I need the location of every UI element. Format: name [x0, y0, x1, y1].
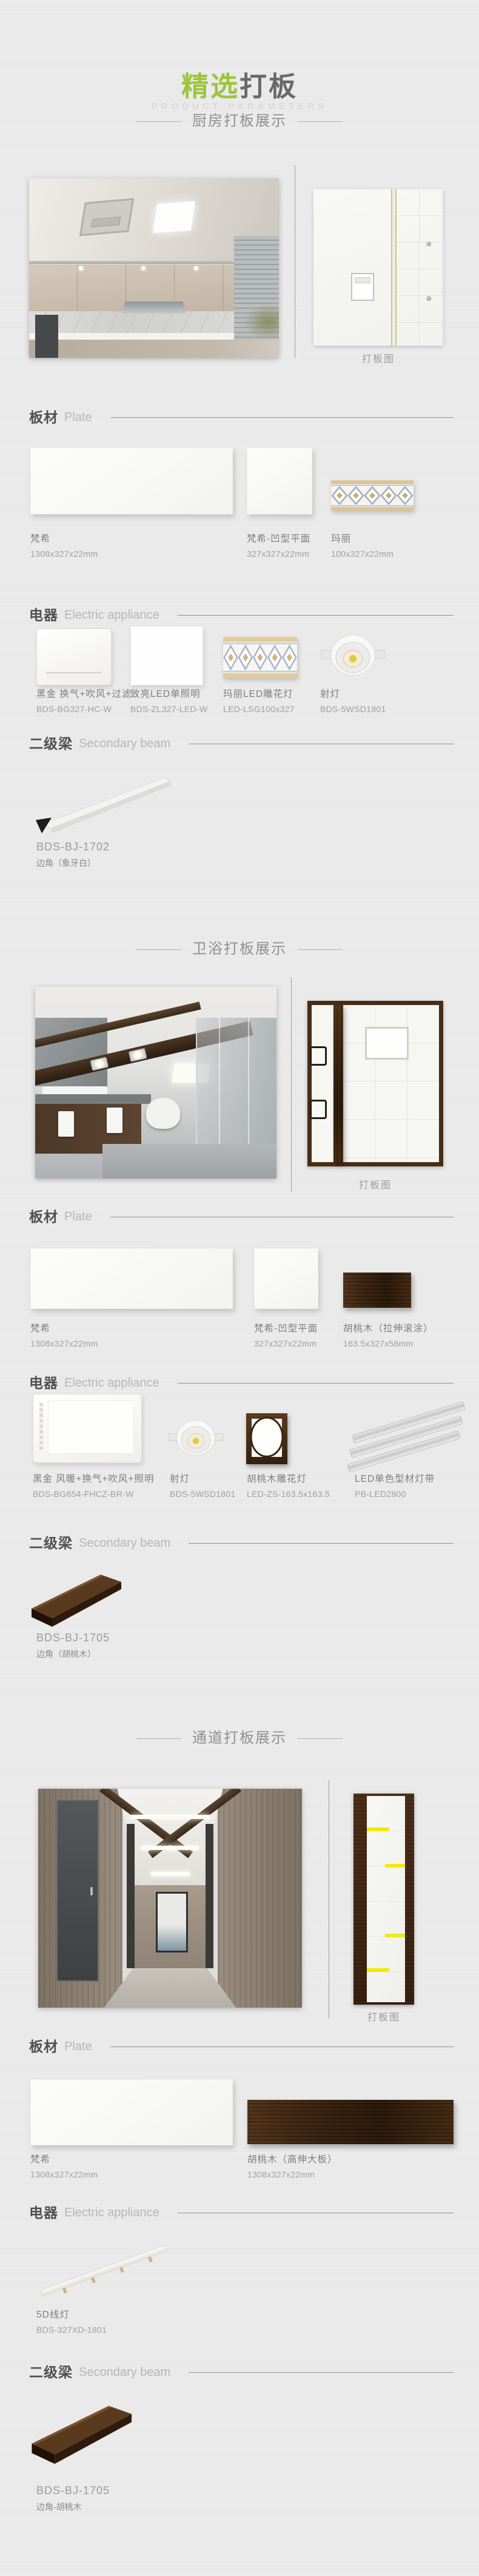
bathroom-panel-diagram: [307, 1001, 443, 1166]
item-name: 梵希-凹型平面: [254, 1321, 318, 1334]
header-rule: [189, 1543, 454, 1544]
kitchen-dark-appliance: [35, 315, 58, 358]
hallway-photo: [38, 1789, 302, 2008]
item-model: PB-LED2800: [355, 1489, 435, 1499]
item-name: 射灯: [320, 687, 386, 700]
plate-header-en: Plate: [64, 2038, 92, 2055]
item-label: 胡桃木（拉伸滚涂） 163.5x327x58mm: [343, 1321, 434, 1348]
walnut-carved-lamp-image: [246, 1413, 287, 1464]
hallway-door-opening: [206, 1824, 213, 1968]
hallway-right-wall: [218, 1789, 302, 2008]
item-size: 1308x327x22mm: [30, 1339, 98, 1348]
plate-walnut-image: [343, 1273, 411, 1308]
beam-header-hallway: 二级梁 Secondary beam: [29, 2364, 454, 2381]
diagram-trim-strip: [391, 189, 397, 346]
item-name: 黑金 风暖+换气+吹风+照明: [33, 1471, 154, 1485]
led-profile-strips-image: [346, 1408, 467, 1467]
header-rule: [178, 615, 454, 616]
header-rule: [110, 1217, 454, 1217]
kitchen-panel-diagram: [313, 189, 443, 346]
item-label: 胡桃木雕花灯 LED-ZS-163.5x163.5: [247, 1471, 330, 1499]
hallway-light-bar: [141, 1846, 199, 1850]
header-rule: [110, 2046, 454, 2047]
item-size: 1308x327x22mm: [30, 549, 98, 559]
door-handle: [90, 1887, 93, 1895]
diagram-appliance-marker: [365, 1027, 409, 1060]
beam-model: BDS-BJ-1705: [36, 2484, 110, 2497]
item-size: 327x327x22mm: [254, 1339, 318, 1348]
bathroom-counter: [35, 1094, 151, 1104]
section-heading-bathroom-text: 卫浴打板展示: [192, 941, 287, 958]
item-model: BDS-BG327-HC-W: [36, 704, 132, 714]
item-label: 致亮LED单照明 BDS-ZL327-LED-W: [130, 687, 207, 714]
diagram-carved-lamp: [310, 1046, 327, 1066]
header-rule: [178, 2213, 454, 2213]
item-model: BDS-5WSD1801: [320, 704, 386, 714]
corner-beam-ivory-icon: [33, 765, 179, 838]
item-name: 5D线灯: [36, 2307, 107, 2321]
mary-pattern: [223, 637, 297, 678]
plate-header-zh: 板材: [29, 2038, 58, 2055]
item-model: BDS-ZL327-LED-W: [130, 704, 207, 714]
section-heading-hallway: 通道打板展示: [0, 1730, 479, 1747]
bathroom-heater-image: [33, 1394, 142, 1463]
hallway-door: [56, 1800, 98, 1982]
diagram-screw: [426, 296, 431, 301]
corner-beam-ivory-image: [33, 765, 179, 838]
heading-line-left: [136, 121, 181, 122]
item-label: 梵希 1308x327x22mm: [30, 531, 98, 559]
header-rule: [178, 1383, 454, 1384]
item-model: LED-LSG100x327: [223, 704, 295, 714]
plate-header-en: Plate: [64, 409, 92, 426]
item-size: 163.5x327x58mm: [343, 1339, 434, 1348]
hallway-floor: [104, 1968, 236, 2008]
section-heading-kitchen: 厨房打板展示: [0, 113, 479, 130]
plate-mary-strip-image: [331, 480, 414, 511]
page-title-rest: 打板: [239, 71, 298, 102]
item-model: BDS-5WSD1801: [170, 1489, 236, 1499]
item-label: LED单色型材灯带 PB-LED2800: [355, 1471, 435, 1499]
bathroom-beam-lamp: [128, 1048, 147, 1062]
diagram-walnut-strip: [333, 1005, 343, 1162]
item-name: 致亮LED单照明: [130, 687, 207, 700]
item-model: BDS-327XD-1801: [36, 2325, 107, 2335]
header-rule: [189, 2372, 454, 2373]
diagram-yellow-stripe: [385, 1934, 405, 1937]
diagram-appliance-marker: [351, 273, 374, 301]
heading-line-left: [136, 949, 181, 950]
beam-desc: 边角（象牙白）: [36, 857, 110, 869]
item-size: 100x327x22mm: [331, 549, 394, 559]
kitchen-photo: [29, 178, 279, 358]
corner-beam-walnut-image: [29, 1569, 126, 1629]
beam-desc: 边角-胡桃木: [36, 2501, 110, 2513]
towel: [58, 1111, 74, 1137]
spotlight-image: [162, 1416, 229, 1463]
item-name: LED单色型材灯带: [355, 1471, 435, 1485]
plate-header-bathroom: 板材 Plate: [29, 1208, 454, 1225]
heading-line-right: [298, 1738, 343, 1739]
beam-header-en: Secondary beam: [79, 735, 170, 752]
appliance-header-kitchen: 电器 Electric appliance: [29, 607, 454, 624]
appliance-header-en: Electric appliance: [64, 2204, 159, 2221]
item-label: 胡桃木（高伸大板） 1308x327x22mm: [247, 2152, 338, 2179]
diagram-caption: 打板图: [346, 2009, 422, 2023]
item-model: BDS-BG654-FHCZ-BR-W: [33, 1489, 154, 1499]
hallway-artwork: [156, 1892, 189, 1952]
item-label: 5D线灯 BDS-327XD-1801: [36, 2307, 107, 2335]
product-sheet: 精选打板 PRODUCT PARAMETERS 厨房打板展示 打板图: [0, 0, 479, 2576]
beam-header-zh: 二级梁: [29, 2364, 73, 2381]
appliance-header-zh: 电器: [29, 1374, 58, 1391]
kitchen-ceiling-light-panel: [153, 201, 195, 233]
kitchen-range-hood: [121, 301, 186, 314]
page-title-highlight: 精选: [181, 71, 239, 102]
item-name: 梵希: [30, 1321, 98, 1334]
diagram-yellow-stripe: [367, 1828, 389, 1831]
item-label: 梵希-凹型平面 327x327x22mm: [254, 1321, 318, 1348]
plate-fanxi-image: [30, 1248, 233, 1309]
spotlight-icon: [318, 630, 388, 684]
item-size: 1308x327x22mm: [30, 2170, 98, 2179]
bathroom-tub: [146, 1098, 180, 1129]
appliance-header-bathroom: 电器 Electric appliance: [29, 1374, 454, 1391]
section-heading-kitchen-text: 厨房打板展示: [192, 113, 287, 130]
bathroom-floor: [102, 1144, 276, 1179]
item-label: 射灯 BDS-5WSD1801: [170, 1471, 236, 1499]
plate-fanxi-image: [30, 2079, 233, 2145]
item-name: 玛丽LED雕花灯: [223, 687, 295, 700]
bathroom-shower-glass: [196, 1018, 276, 1145]
beam-header-en: Secondary beam: [79, 1535, 170, 1552]
hallway-door-opening: [127, 1824, 135, 1968]
kitchen-base-cabinets: [29, 340, 279, 358]
item-label: 梵希 1308x327x22mm: [30, 1321, 98, 1348]
spotlight-image: [318, 630, 388, 684]
beam-desc: 边角（胡桃木）: [36, 1648, 110, 1660]
mary-led-carved-lamp-image: [223, 637, 297, 678]
corner-beam-walnut-icon: [29, 1569, 126, 1629]
plate-walnut-large-image: [247, 2100, 454, 2144]
spotlight-icon: [162, 1416, 229, 1463]
kitchen-plant: [244, 304, 279, 340]
beam-label: BDS-BJ-1705 边角（胡桃木）: [36, 1632, 110, 1660]
beam-model: BDS-BJ-1702: [36, 841, 110, 853]
hallway-panel-diagram: [353, 1794, 414, 2005]
plate-header-zh: 板材: [29, 409, 58, 426]
bathroom-photo: [35, 987, 276, 1179]
item-name: 梵希: [30, 2152, 98, 2165]
page-subtitle: PRODUCT PARAMETERS: [0, 101, 479, 112]
page-title: 精选打板: [0, 64, 479, 104]
diagram-yellow-stripe: [385, 1864, 405, 1868]
item-name: 黑金 换气+吹风+过滤: [36, 687, 132, 700]
glass-highlight: [248, 1018, 249, 1145]
beam-label: BDS-BJ-1705 边角-胡桃木: [36, 2484, 110, 2513]
plate-header-hallway: 板材 Plate: [29, 2038, 454, 2055]
heading-line-right: [298, 121, 343, 122]
item-label: 黑金 风暖+换气+吹风+照明 BDS-BG654-FHCZ-BR-W: [33, 1471, 154, 1499]
diagram-caption: 打板图: [307, 1177, 443, 1191]
beam-model: BDS-BJ-1705: [36, 1632, 110, 1644]
plate-header-kitchen: 板材 Plate: [29, 409, 454, 426]
heading-line-left: [136, 1738, 181, 1739]
appliance-header-zh: 电器: [29, 2204, 58, 2221]
hallway-light-bar: [150, 1872, 190, 1876]
section-heading-hallway-text: 通道打板展示: [192, 1730, 287, 1747]
kitchen-ceiling-vent: [79, 198, 134, 237]
towel: [107, 1108, 122, 1133]
beam-header-bathroom: 二级梁 Secondary beam: [29, 1535, 454, 1552]
item-name: 胡桃木雕花灯: [247, 1471, 330, 1485]
item-name: 梵希: [30, 531, 98, 545]
vertical-divider: [329, 1780, 329, 2019]
corner-beam-walnut-icon: [29, 2399, 137, 2467]
hallway-light-bar: [130, 1815, 210, 1819]
item-label: 梵希 1308x327x22mm: [30, 2152, 98, 2179]
heading-line-right: [298, 949, 343, 950]
item-size: 1308x327x22mm: [247, 2170, 338, 2179]
vertical-divider: [291, 978, 292, 1192]
appliance-header-zh: 电器: [29, 607, 58, 624]
corner-beam-walnut-image: [29, 2399, 137, 2467]
item-name: 射灯: [170, 1471, 236, 1485]
appliance-header-en: Electric appliance: [64, 1374, 159, 1391]
plate-header-en: Plate: [64, 1208, 92, 1225]
diagram-caption: 打板图: [313, 351, 443, 365]
header-rule: [189, 744, 454, 744]
beam-label: BDS-BJ-1702 边角（象牙白）: [36, 841, 110, 869]
bathroom-beam-lamp: [90, 1057, 109, 1071]
section-heading-bathroom: 卫浴打板展示: [0, 941, 479, 958]
kitchen-downlight: [194, 266, 198, 271]
item-label: 梵希-凹型平面 327x327x22mm: [247, 531, 310, 559]
beam-header-zh: 二级梁: [29, 735, 73, 752]
beam-header-en: Secondary beam: [79, 2364, 170, 2381]
plate-fanxi-concave-image: [247, 448, 312, 514]
item-name: 梵希-凹型平面: [247, 531, 310, 545]
beam-header-zh: 二级梁: [29, 1535, 73, 1552]
plate-fanxi-concave-image: [254, 1248, 318, 1309]
diagram-panel: [367, 1796, 405, 2002]
kitchen-vent-fan-image: [36, 628, 112, 685]
five-d-line-light-image: [33, 2238, 176, 2305]
beam-header-kitchen: 二级梁 Secondary beam: [29, 735, 454, 752]
item-label: 玛丽 100x327x22mm: [331, 531, 394, 559]
appliance-header-hallway: 电器 Electric appliance: [29, 2204, 454, 2221]
item-name: 玛丽: [331, 531, 394, 545]
header-rule: [110, 417, 454, 418]
kitchen-countertop: [29, 333, 234, 340]
item-label: 黑金 换气+吹风+过滤 BDS-BG327-HC-W: [36, 687, 132, 714]
item-name: 胡桃木（拉伸滚涂）: [343, 1321, 434, 1334]
item-label: 射灯 BDS-5WSD1801: [320, 687, 386, 714]
plate-fanxi-image: [30, 448, 233, 514]
item-model: LED-ZS-163.5x163.5: [247, 1489, 330, 1499]
plate-header-zh: 板材: [29, 1208, 58, 1225]
mary-pattern: [331, 480, 414, 511]
item-size: 327x327x22mm: [247, 549, 310, 559]
vertical-divider: [295, 165, 295, 358]
glass-highlight: [219, 1018, 220, 1145]
appliance-header-en: Electric appliance: [64, 607, 159, 624]
diagram-carved-lamp: [310, 1100, 327, 1119]
led-panel-image: [130, 626, 203, 685]
diagram-screw: [426, 241, 431, 246]
kitchen-backsplash: [29, 311, 234, 333]
item-label: 玛丽LED雕花灯 LED-LSG100x327: [223, 687, 295, 714]
item-name: 胡桃木（高伸大板）: [247, 2152, 338, 2165]
diagram-grid: [397, 189, 443, 346]
diagram-yellow-stripe: [367, 1968, 389, 1972]
